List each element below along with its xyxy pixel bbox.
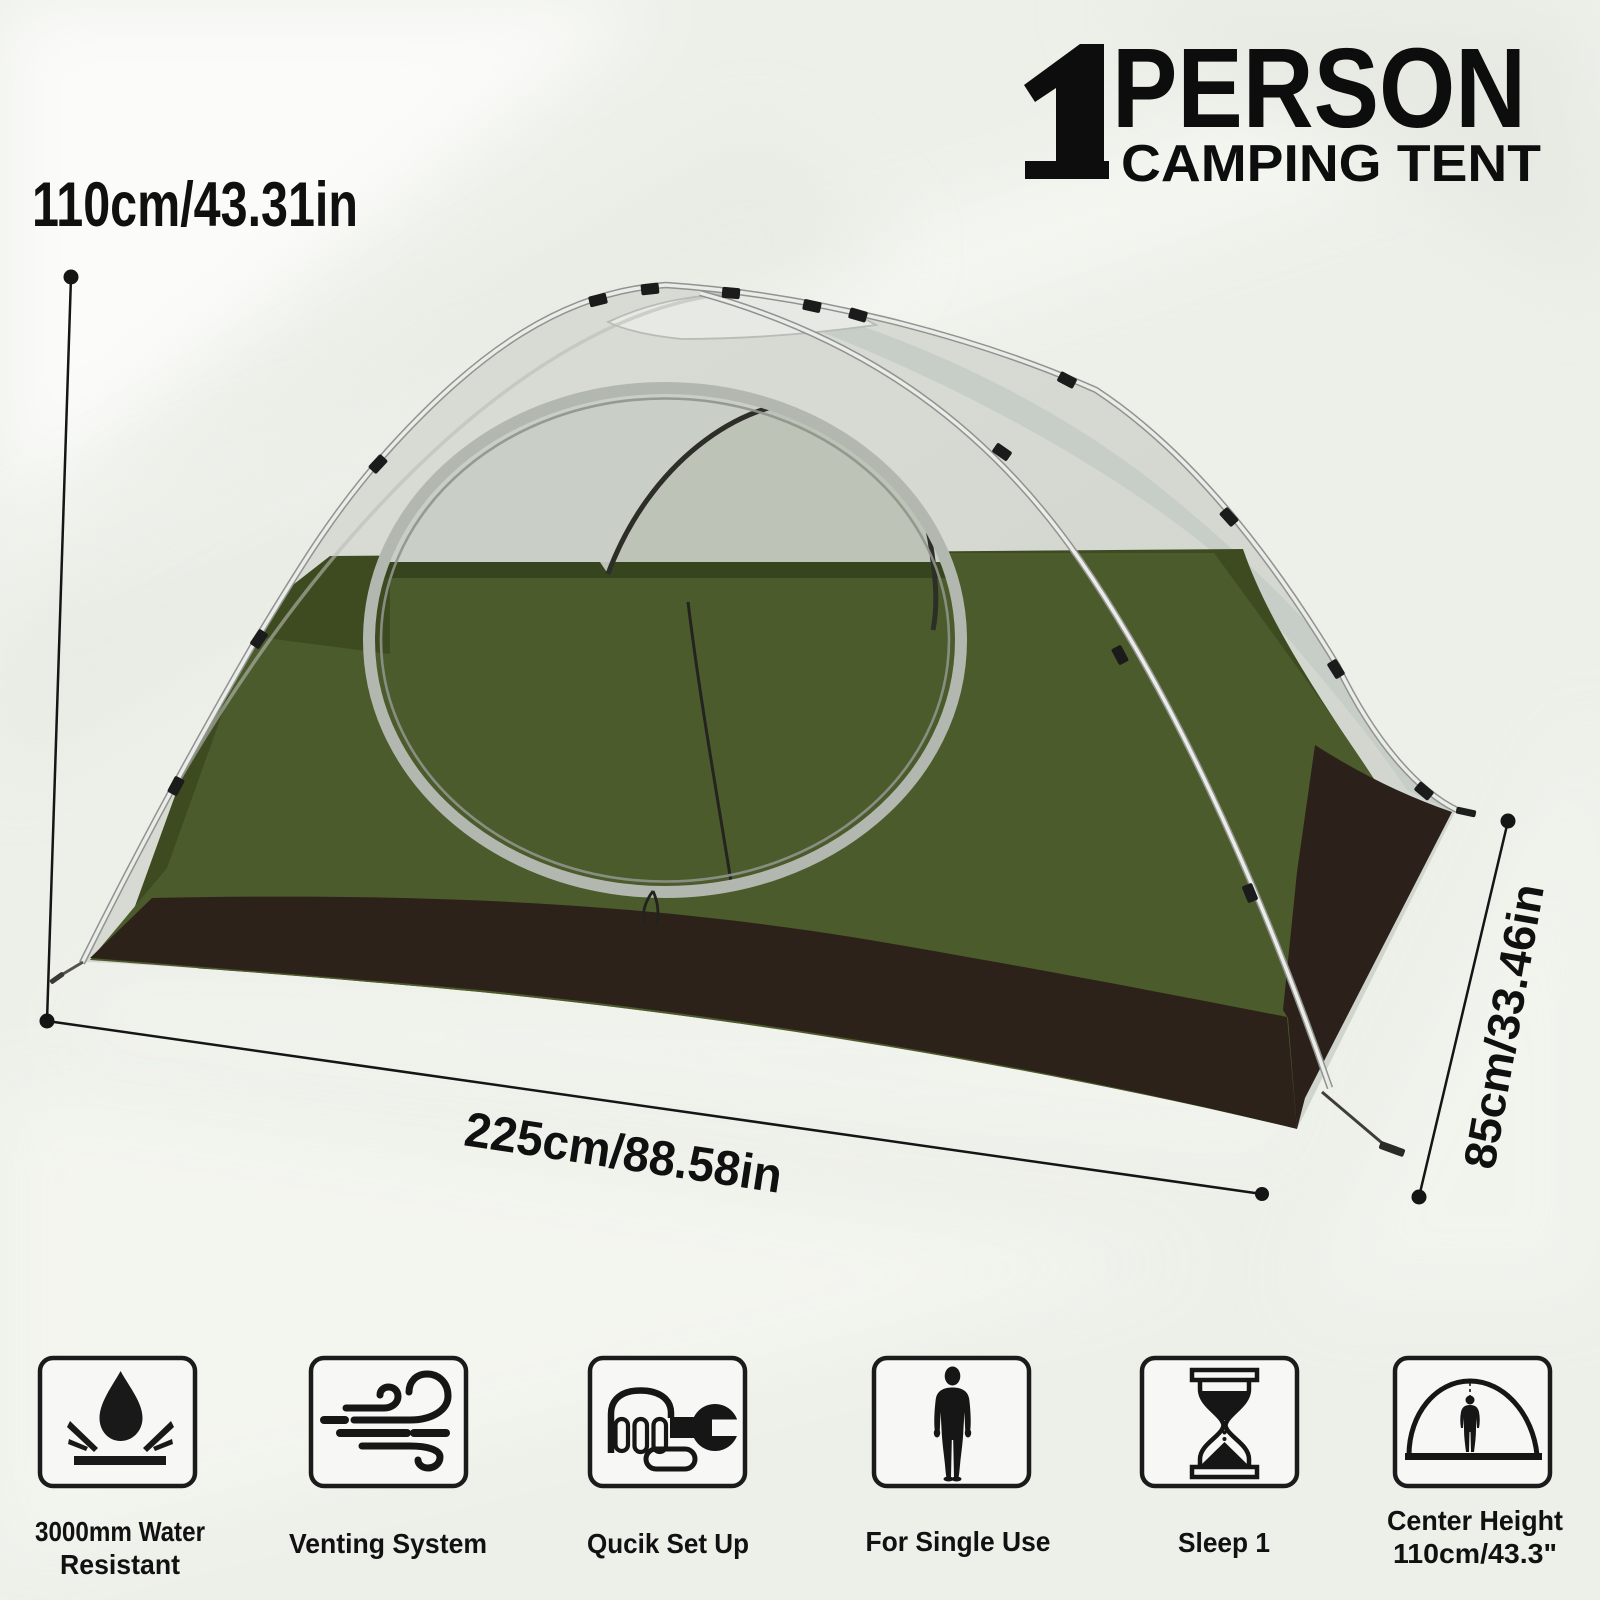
svg-text:Venting System: Venting System [289, 1528, 487, 1559]
svg-text:Resistant: Resistant [60, 1549, 180, 1580]
svg-text:Center Height: Center Height [1387, 1505, 1563, 1536]
svg-text:CAMPING TENT: CAMPING TENT [1121, 135, 1541, 193]
svg-text:PERSON: PERSON [1112, 25, 1526, 151]
svg-text:110cm/43.3": 110cm/43.3" [1393, 1538, 1557, 1569]
svg-text:110cm/43.31in: 110cm/43.31in [32, 170, 358, 240]
svg-text:Qucik Set Up: Qucik Set Up [587, 1528, 749, 1559]
svg-text:For Single Use: For Single Use [866, 1526, 1051, 1557]
svg-text:3000mm Water: 3000mm Water [35, 1516, 205, 1547]
svg-text:Sleep 1: Sleep 1 [1178, 1527, 1270, 1558]
